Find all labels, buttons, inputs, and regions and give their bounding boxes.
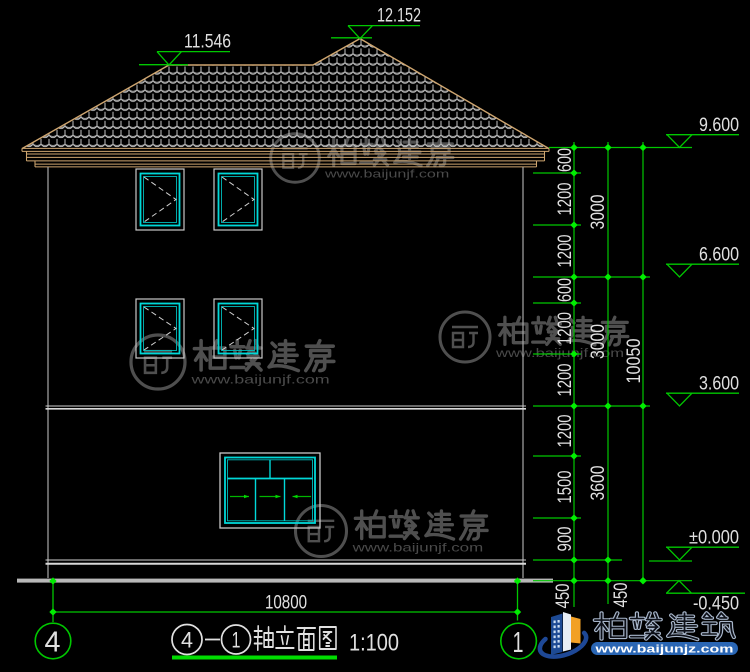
svg-text:1200: 1200 <box>555 364 576 397</box>
svg-text:1: 1 <box>513 627 524 659</box>
svg-text:12.152: 12.152 <box>377 6 421 27</box>
svg-text:www.baijunjz.com: www.baijunjz.com <box>594 644 734 656</box>
svg-text:4: 4 <box>181 628 193 653</box>
svg-text:450: 450 <box>611 583 632 608</box>
svg-text:3.600: 3.600 <box>699 374 739 395</box>
svg-text:1: 1 <box>232 628 241 653</box>
svg-text:3600: 3600 <box>588 466 609 501</box>
svg-text:10800: 10800 <box>265 593 307 614</box>
svg-text:450: 450 <box>553 584 574 609</box>
svg-text:4: 4 <box>45 627 61 659</box>
svg-text:1200: 1200 <box>555 415 576 448</box>
svg-text:-0.450: -0.450 <box>693 594 739 615</box>
svg-text:3000: 3000 <box>588 324 609 359</box>
svg-text:9.600: 9.600 <box>699 115 739 136</box>
svg-text:11.546: 11.546 <box>184 32 231 53</box>
svg-text:1200: 1200 <box>555 183 576 216</box>
svg-text:1500: 1500 <box>555 471 576 504</box>
svg-text:600: 600 <box>555 278 576 302</box>
svg-text:600: 600 <box>555 148 576 172</box>
svg-text:1200: 1200 <box>555 235 576 268</box>
svg-text:3000: 3000 <box>588 195 609 230</box>
svg-text:10050: 10050 <box>624 339 645 384</box>
svg-text:6.600: 6.600 <box>699 245 739 266</box>
svg-text:1200: 1200 <box>555 312 576 345</box>
svg-text:±0.000: ±0.000 <box>689 528 739 549</box>
svg-text:1:100: 1:100 <box>349 630 399 657</box>
svg-text:900: 900 <box>555 527 576 552</box>
